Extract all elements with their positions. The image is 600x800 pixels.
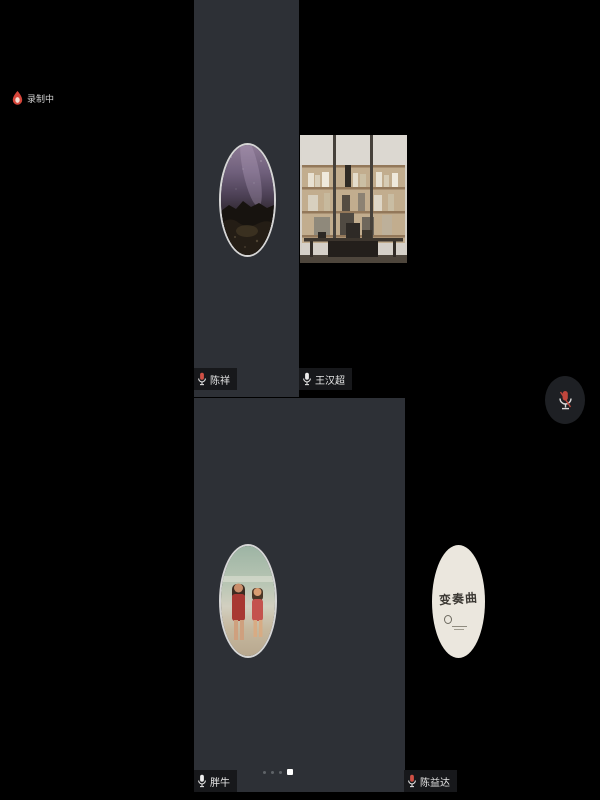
participant-name: 王汉超	[315, 372, 345, 387]
bottom-tiles-row: 胖牛 变奏曲 陈益达	[194, 398, 405, 792]
mic-muted-icon	[557, 389, 574, 412]
office-room-video	[300, 135, 407, 263]
pagination-dot	[263, 771, 266, 774]
participant-name-label: 胖牛	[194, 770, 237, 792]
participant-name-label: 陈祥	[194, 368, 237, 390]
participant-name: 陈益达	[420, 774, 450, 789]
pagination-dot	[271, 771, 274, 774]
recording-label: 录制中	[27, 92, 54, 105]
recording-icon	[12, 91, 23, 105]
two-children-photo	[219, 544, 277, 658]
participant-name: 陈祥	[210, 372, 230, 387]
logo-badge: 变奏曲	[432, 545, 485, 658]
participant-name-label: 陈益达	[404, 770, 457, 792]
mic-icon	[302, 372, 312, 386]
mic-muted-icon	[197, 372, 207, 386]
recording-indicator: 录制中	[12, 91, 54, 105]
participant-tile-1[interactable]: 陈祥	[194, 0, 299, 397]
participant-name-label: 王汉超	[299, 368, 352, 390]
pagination-dot	[279, 771, 282, 774]
mic-toggle-button[interactable]	[545, 376, 585, 424]
participant-tile-2[interactable]: 王汉超	[299, 0, 406, 397]
mic-icon	[197, 774, 207, 788]
participant-tile-4[interactable]: 变奏曲 陈益达	[299, 398, 405, 792]
logo-badge-marks	[444, 615, 485, 630]
pagination-dot	[287, 769, 293, 775]
participant-tile-3[interactable]: 胖牛	[194, 398, 299, 792]
logo-badge-text: 变奏曲	[432, 588, 485, 609]
meeting-stage: 录制中	[0, 0, 600, 800]
mic-muted-icon	[407, 774, 417, 788]
pagination-dots	[263, 768, 293, 776]
participant-name: 胖牛	[210, 774, 230, 789]
night-sky-photo	[219, 143, 276, 257]
